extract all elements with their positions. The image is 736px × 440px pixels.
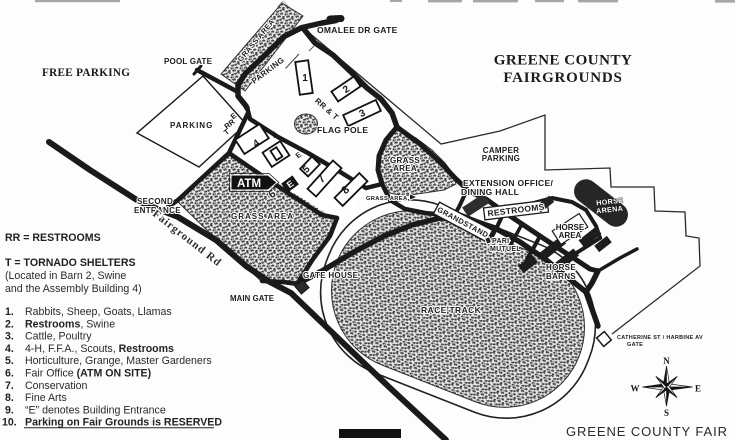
svg-text:4-H, F.F.A., Scouts, Restrooms: 4-H, F.F.A., Scouts, Restrooms: [25, 343, 174, 355]
svg-text:POOL GATE: POOL GATE: [164, 57, 213, 66]
svg-text:GRASS AREA: GRASS AREA: [366, 196, 408, 202]
svg-text:MAIN GATE: MAIN GATE: [230, 294, 274, 303]
svg-text:RR = RESTROOMS: RR = RESTROOMS: [5, 232, 101, 244]
svg-text:Cattle, Poultry: Cattle, Poultry: [25, 331, 92, 343]
svg-text:FREE PARKING: FREE PARKING: [42, 67, 130, 79]
svg-text:PARKING: PARKING: [482, 154, 520, 163]
svg-text:BARNS: BARNS: [546, 272, 576, 281]
svg-text:CATHERINE ST / HARBINE AV: CATHERINE ST / HARBINE AV: [617, 335, 703, 341]
svg-text:“E” denotes Building Entrance: “E” denotes Building Entrance: [25, 404, 166, 416]
svg-text:and the Assembly Building 4): and the Assembly Building 4): [5, 283, 142, 295]
svg-text:6.: 6.: [5, 368, 14, 380]
svg-text:PARKING: PARKING: [170, 121, 213, 130]
svg-text:ATM: ATM: [237, 178, 261, 190]
svg-text:4.: 4.: [5, 343, 14, 355]
svg-text:PARI: PARI: [492, 238, 509, 245]
svg-text:10.: 10.: [2, 417, 17, 429]
svg-text:HORSE: HORSE: [546, 263, 576, 272]
svg-text:DINING HALL: DINING HALL: [461, 187, 519, 197]
svg-text:N: N: [663, 356, 670, 366]
svg-text:FLAG POLE: FLAG POLE: [317, 125, 368, 135]
svg-text:OMALEE DR GATE: OMALEE DR GATE: [317, 25, 398, 35]
svg-text:3.: 3.: [5, 331, 14, 343]
svg-text:1.: 1.: [5, 306, 14, 318]
svg-text:9.: 9.: [5, 404, 14, 416]
svg-text:Rabbits, Sheep, Goats, Llamas: Rabbits, Sheep, Goats, Llamas: [25, 306, 172, 318]
svg-text:Fine Arts: Fine Arts: [25, 392, 67, 404]
svg-text:GREENE COUNTY FAIR: GREENE COUNTY FAIR: [566, 424, 728, 439]
svg-text:RACE TRACK: RACE TRACK: [421, 305, 482, 315]
svg-text:AREA: AREA: [559, 231, 582, 240]
svg-text:Conservation: Conservation: [25, 380, 88, 392]
svg-text:S: S: [664, 408, 669, 418]
svg-text:5.: 5.: [5, 355, 14, 367]
svg-text:E: E: [695, 384, 701, 394]
svg-text:W: W: [631, 384, 640, 394]
svg-text:Horticulture, Grange, Master G: Horticulture, Grange, Master Gardeners: [25, 355, 212, 367]
svg-text:1: 1: [302, 73, 308, 84]
svg-text:8.: 8.: [5, 392, 14, 404]
svg-text:GATE: GATE: [627, 342, 643, 348]
svg-text:2.: 2.: [5, 318, 14, 330]
svg-text:GATE HOUSE: GATE HOUSE: [303, 271, 359, 280]
svg-text:T = TORNADO SHELTERS: T = TORNADO SHELTERS: [5, 257, 136, 269]
svg-text:MUTUEL: MUTUEL: [490, 246, 521, 253]
svg-text:Restrooms, Swine: Restrooms, Swine: [25, 318, 115, 330]
svg-text:(Located in Barn 2, Swine: (Located in Barn 2, Swine: [5, 270, 126, 282]
svg-text:SECOND: SECOND: [137, 197, 173, 206]
svg-text:Parking on Fair Grounds is RES: Parking on Fair Grounds is RESERVED: [25, 417, 222, 429]
svg-text:7.: 7.: [5, 380, 14, 392]
svg-text:GRASS AREA: GRASS AREA: [231, 212, 294, 221]
svg-text:AREA: AREA: [393, 164, 417, 173]
svg-text:FAIRGROUNDS: FAIRGROUNDS: [503, 70, 622, 86]
svg-text:Fair Office (ATM ON SITE): Fair Office (ATM ON SITE): [25, 368, 151, 380]
svg-text:GREENE COUNTY: GREENE COUNTY: [494, 53, 633, 69]
